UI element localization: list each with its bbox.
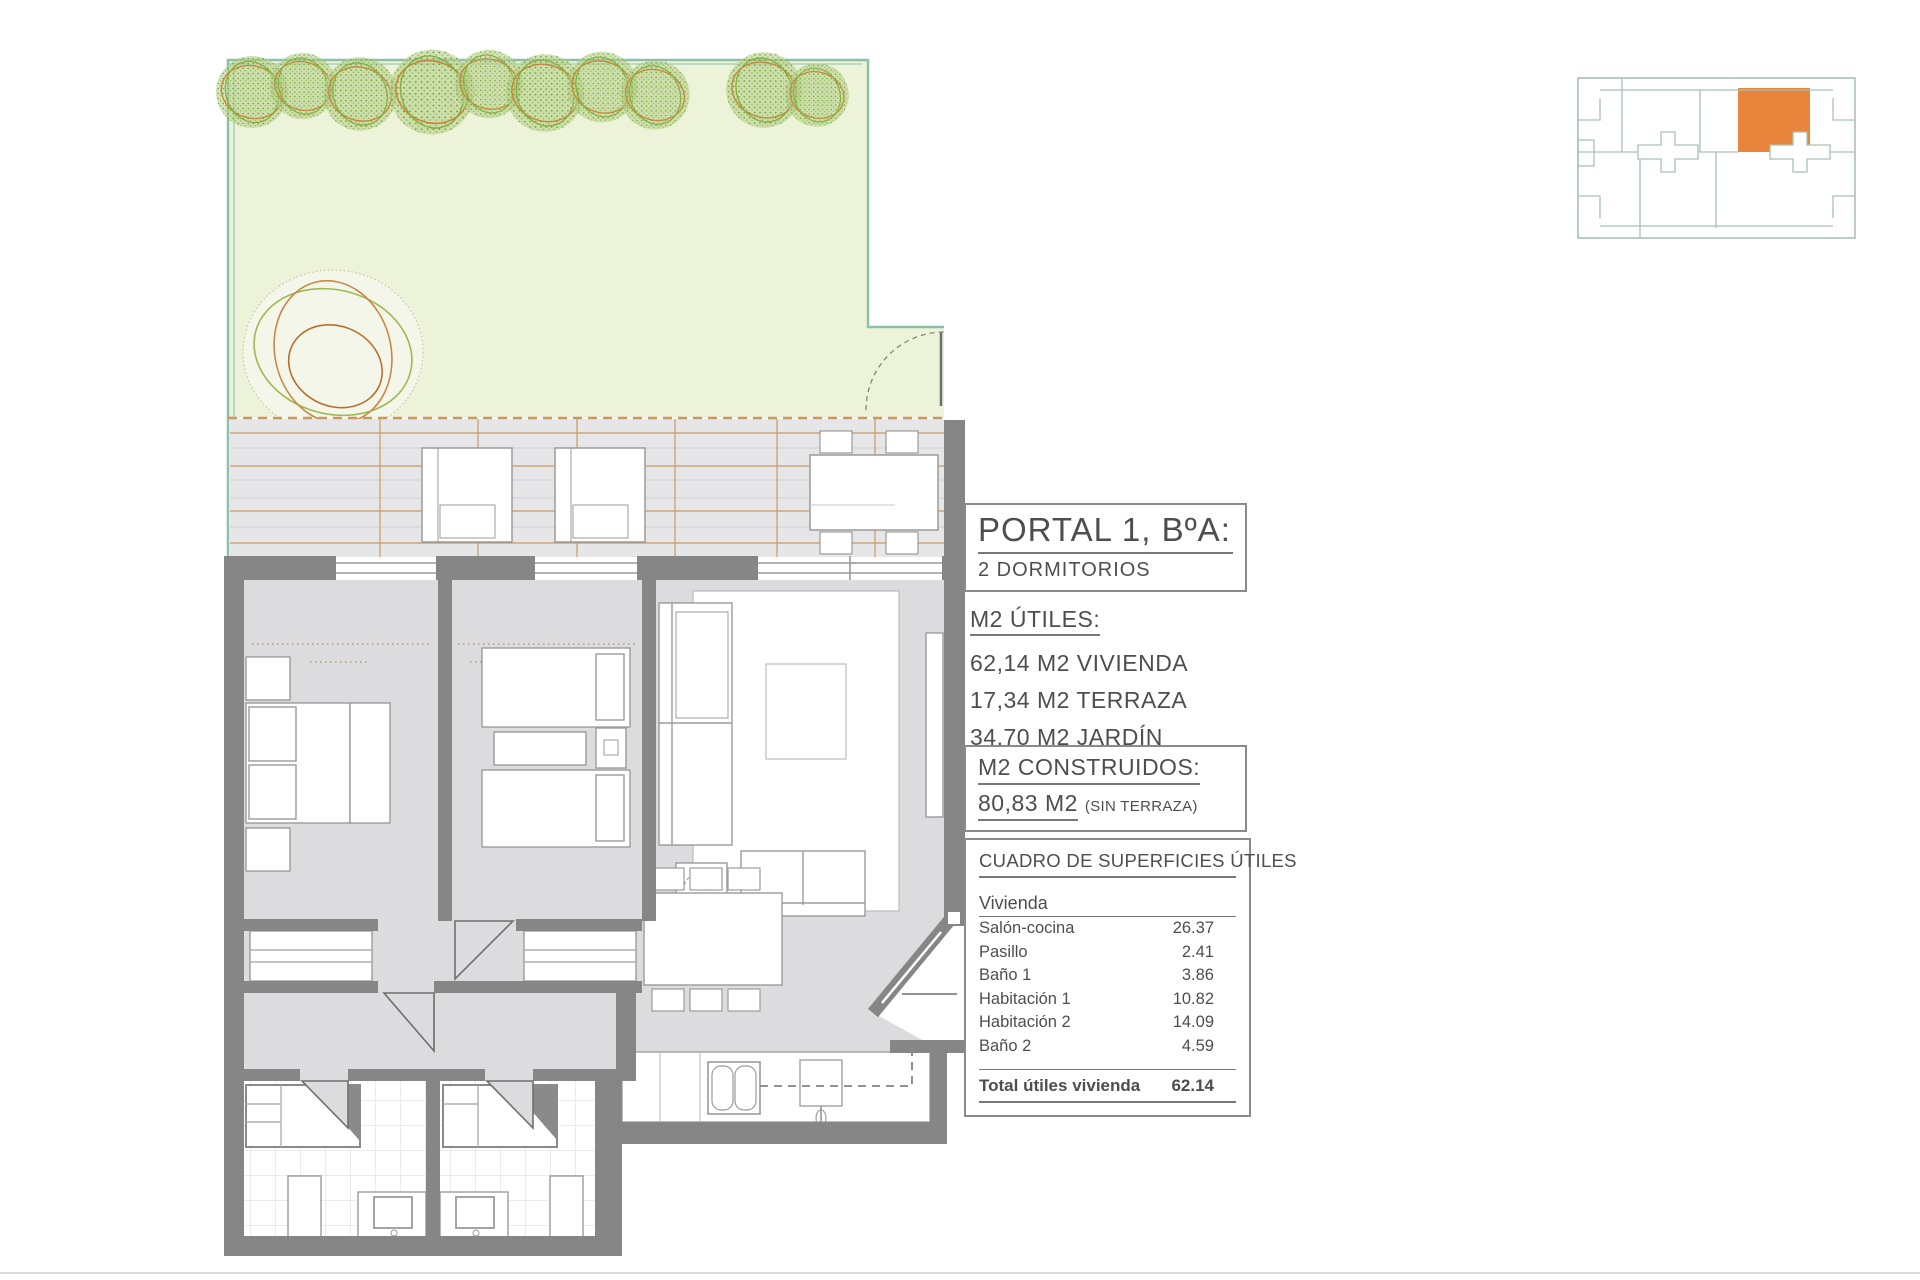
row-label: Salón-cocina bbox=[979, 917, 1074, 941]
row-label: Habitación 2 bbox=[979, 1011, 1071, 1035]
kitchen-counter bbox=[622, 1052, 930, 1122]
row-value: 3.86 bbox=[1182, 964, 1214, 988]
row-label: Baño 1 bbox=[979, 964, 1031, 988]
m2-utiles-vivienda: 62,14 M2 VIVIENDA bbox=[970, 645, 1250, 682]
m2-construidos-box: M2 CONSTRUIDOS: 80,83 M2(SIN TERRAZA) bbox=[964, 745, 1247, 832]
total-value: 62.14 bbox=[1171, 1076, 1214, 1096]
terrace-lounger-2 bbox=[555, 448, 645, 542]
m2-construidos-value: 80,83 M2 bbox=[978, 790, 1078, 821]
portal-title: PORTAL 1, BºA: bbox=[978, 511, 1233, 554]
row-label: Habitación 1 bbox=[979, 988, 1071, 1012]
table-row: Baño 2 4.59 bbox=[979, 1035, 1236, 1059]
bedroom-2-furniture bbox=[482, 648, 630, 847]
living-room-glass-doors bbox=[758, 556, 942, 580]
table-total-row: Total útiles vivienda 62.14 bbox=[979, 1069, 1236, 1103]
m2-utiles-block: M2 ÚTILES: 62,14 M2 VIVIENDA 17,34 M2 TE… bbox=[970, 606, 1250, 756]
m2-construidos-line: 80,83 M2(SIN TERRAZA) bbox=[978, 790, 1233, 821]
m2-construidos-title: M2 CONSTRUIDOS: bbox=[978, 754, 1200, 785]
terrace-lounger-1 bbox=[422, 448, 512, 542]
row-value: 26.37 bbox=[1173, 917, 1214, 941]
portal-subtitle: 2 DORMITORIOS bbox=[978, 559, 1233, 582]
portal-info-box: PORTAL 1, BºA: 2 DORMITORIOS bbox=[964, 503, 1247, 592]
row-label: Pasillo bbox=[979, 941, 1028, 965]
key-plan bbox=[1578, 78, 1855, 238]
m2-utiles-title: M2 ÚTILES: bbox=[970, 606, 1100, 636]
surface-table-box: CUADRO DE SUPERFICIES ÚTILES Vivienda Sa… bbox=[964, 838, 1251, 1117]
row-value: 2.41 bbox=[1182, 941, 1214, 965]
table-row: Habitación 2 14.09 bbox=[979, 1011, 1236, 1035]
m2-utiles-terraza: 17,34 M2 TERRAZA bbox=[970, 682, 1250, 719]
row-value: 10.82 bbox=[1173, 988, 1214, 1012]
floor-plan-svg bbox=[0, 0, 1920, 1280]
surface-table-title: CUADRO DE SUPERFICIES ÚTILES bbox=[979, 850, 1236, 878]
row-label: Baño 2 bbox=[979, 1035, 1031, 1059]
table-row: Salón-cocina 26.37 bbox=[979, 917, 1236, 941]
terrace bbox=[228, 418, 944, 557]
table-row: Baño 1 3.86 bbox=[979, 964, 1236, 988]
surface-table-group-label: Vivienda bbox=[979, 893, 1236, 917]
row-value: 4.59 bbox=[1182, 1035, 1214, 1059]
row-value: 14.09 bbox=[1173, 1011, 1214, 1035]
table-row: Pasillo 2.41 bbox=[979, 941, 1236, 965]
sheet-bottom-rule bbox=[0, 1272, 1920, 1274]
bedroom-2-window bbox=[535, 563, 637, 573]
floorplan-sheet: PORTAL 1, BºA: 2 DORMITORIOS M2 ÚTILES: … bbox=[0, 0, 1920, 1280]
m2-construidos-note: (SIN TERRAZA) bbox=[1085, 798, 1198, 815]
total-label: Total útiles vivienda bbox=[979, 1076, 1140, 1096]
bedroom-1-window bbox=[336, 563, 436, 573]
table-row: Habitación 1 10.82 bbox=[979, 988, 1236, 1012]
